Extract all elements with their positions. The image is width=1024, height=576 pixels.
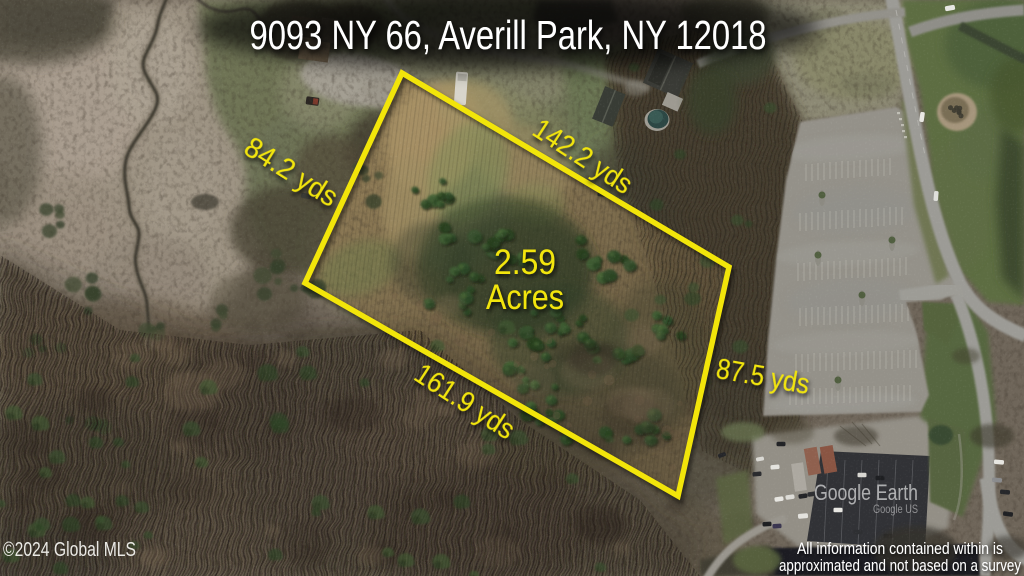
svg-text:All information contained with: All information contained within is bbox=[797, 540, 1003, 558]
svg-text:9093 NY 66, Averill Park, NY 1: 9093 NY 66, Averill Park, NY 12018 bbox=[250, 12, 767, 58]
svg-text:2.59: 2.59 bbox=[494, 243, 556, 282]
svg-text:©2024 Global MLS: ©2024 Global MLS bbox=[3, 539, 136, 561]
svg-text:Google US: Google US bbox=[873, 504, 918, 516]
svg-text:approximated and not based on: approximated and not based on a survey bbox=[779, 557, 1022, 575]
svg-text:Acres: Acres bbox=[486, 278, 564, 317]
svg-text:Google Earth: Google Earth bbox=[814, 480, 918, 505]
